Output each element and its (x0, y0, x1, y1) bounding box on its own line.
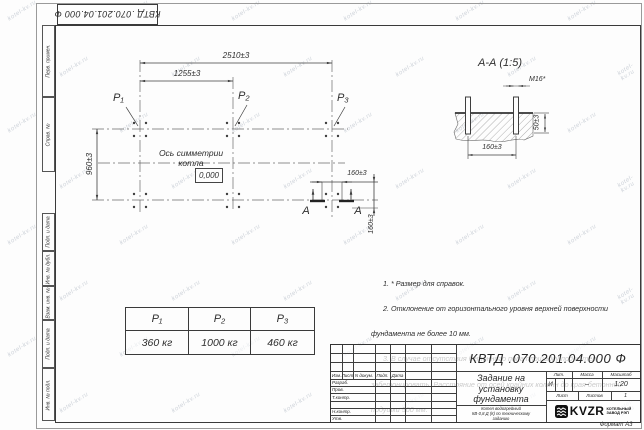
dim-160-h-label: 160±3 (340, 170, 374, 177)
load-table-header-p3: Р₃ (251, 308, 314, 331)
section-letter-a2: А (351, 205, 365, 217)
dim-2510-label: 2510±3 (206, 51, 266, 60)
symmetry-axis-label: Ось симметрии котла (148, 148, 234, 168)
dim-1255-label: 1255±3 (157, 69, 217, 78)
document-designation: КВТД .070.201.04.000 Ф (456, 345, 640, 371)
frame-label-perv-primen: Перв. примен. (42, 25, 55, 97)
frame-label-inv-podl: Инв. № подл. (42, 368, 55, 421)
load-table-value-p1: 360 кг (126, 331, 189, 354)
dim-50-label: 50±3 (532, 112, 543, 134)
dim-960-label: 960±3 (83, 151, 95, 177)
row-utv: Утв. (332, 415, 375, 422)
load-table-header-p2: Р₂ (189, 308, 251, 331)
logo-caption: КОТЕЛЬНЫЙ ЗАВОД РЭП (606, 407, 631, 416)
logo-text: KVZR (570, 404, 605, 418)
title-block: Изм. Лист N докум. Подп. Дата Разраб. Пр… (330, 344, 641, 423)
col-data: Дата (390, 371, 405, 379)
top-designation-text: КВТД .070.201.04.000 Ф (58, 5, 157, 24)
load-table: Р₁ Р₂ Р₃ 360 кг 1000 кг 460 кг (125, 307, 315, 355)
format-label: Формат А3 (592, 422, 640, 428)
lit-value: И (546, 378, 555, 391)
note-line: фундамента не более 10 мм. (371, 330, 639, 338)
col-dokum: N докум. (353, 371, 375, 379)
sheets-value: 1 (611, 391, 640, 400)
note-line: 2. Отклонение от горизонтального уровня … (371, 305, 639, 313)
project-line3: заданию (456, 416, 546, 421)
load-point-p3-label: Р₃ (337, 92, 357, 104)
dimension-lines (97, 63, 378, 216)
top-designation-stamp: КВТД .070.201.04.000 Ф (57, 4, 158, 25)
leader-lines (126, 105, 345, 126)
section-view-title: А-А (1:5) (468, 57, 532, 69)
load-table-value-p3: 460 кг (251, 331, 314, 354)
load-point-p1-label: Р₁ (113, 92, 133, 104)
col-izm: Изм. (331, 371, 342, 379)
col-list: Лист (342, 371, 353, 379)
kvzr-logo-icon (555, 405, 568, 418)
scale-header: Масштаб (602, 371, 640, 378)
note-line: 1. * Размер для справок. (371, 280, 639, 288)
mass-header: Масса (572, 371, 602, 378)
row-prov: Пров. (332, 386, 375, 393)
bolt-m16-label: М16* (529, 76, 553, 83)
lit-header: Лит. (546, 371, 572, 378)
drawing-sheet: kotel-kv.rukotel-kv.rukotel-kv.rukotel-k… (0, 0, 644, 430)
dim-160-v-label: 160±3 (366, 209, 376, 239)
frame-label-podp-data-2: Подп. и дата (42, 320, 55, 368)
dim-160-section-label: 160±3 (477, 144, 507, 151)
load-point-p2-label: Р₂ (238, 90, 258, 102)
col-podp: Подп. (375, 371, 390, 379)
frame-label-podp-data-1: Подп. и дата (42, 213, 55, 251)
row-nkontr: Н.контр. (332, 408, 375, 415)
company-logo: KVZR КОТЕЛЬНЫЙ ЗАВОД РЭП (546, 400, 640, 422)
doc-title-line3: фундамента (456, 393, 546, 404)
frame-label-sprav-n: Справ. № (42, 97, 55, 172)
row-tkontr: Т.контр. (332, 393, 375, 401)
section-letter-a1: А (299, 205, 313, 217)
load-table-value-p2: 1000 кг (189, 331, 251, 354)
level-mark: 0,000 (195, 168, 223, 183)
frame-label-vzam-inv: Взам. инв. № (42, 286, 55, 320)
mass-value: – (572, 378, 602, 391)
frame-label-inv-dubl: Инв. № дубл. (42, 251, 55, 286)
sheets-label: Листов (578, 391, 611, 400)
scale-value: 1:20 (602, 378, 640, 391)
load-table-header-p1: Р₁ (126, 308, 189, 331)
sheet-label: Лист (546, 391, 578, 400)
doc-title-line1: Задание на (456, 372, 546, 383)
row-razrab: Разраб. (332, 379, 375, 386)
